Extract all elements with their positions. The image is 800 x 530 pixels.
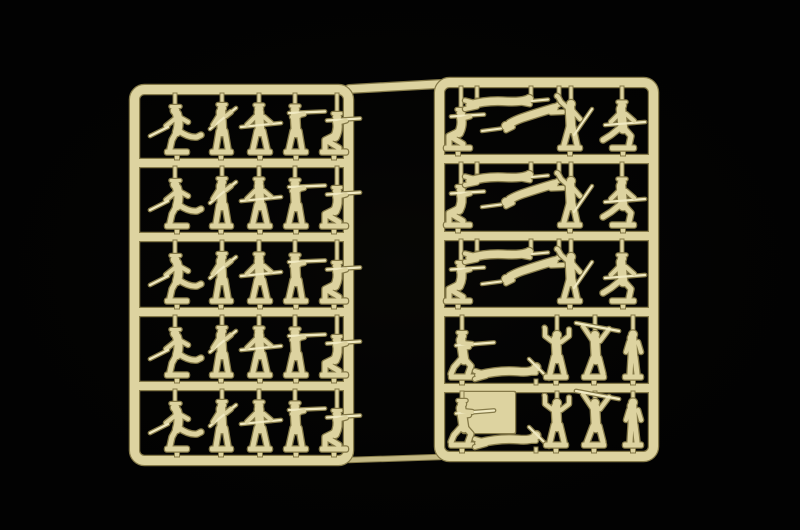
vignette [0, 0, 800, 530]
photo-of-model-sprues [0, 0, 800, 530]
attachment-stub [475, 86, 479, 98]
runner-bottom-face [349, 457, 440, 460]
attachment-stub [475, 162, 479, 174]
attachment-stub [534, 447, 538, 453]
runner-top-face [349, 84, 440, 89]
sprue-photo-svg [0, 0, 800, 530]
attachment-stub [475, 239, 479, 251]
attachment-stub [534, 379, 538, 385]
